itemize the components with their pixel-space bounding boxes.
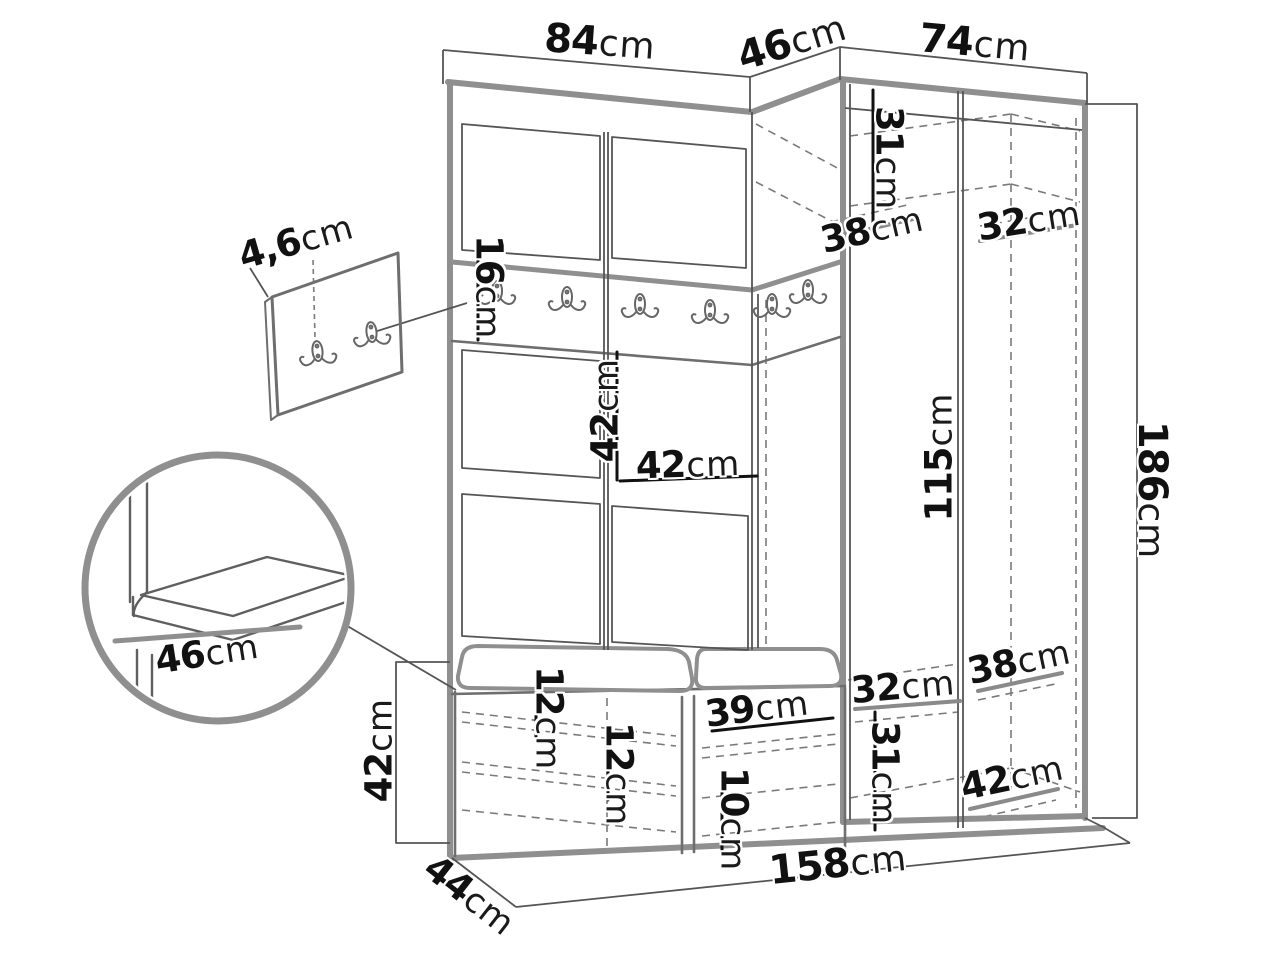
- dim-unit: cm: [972, 27, 1032, 68]
- dim-value: 42: [587, 413, 624, 463]
- dim-value: 32: [849, 668, 902, 709]
- dim-unit: cm: [1132, 502, 1168, 559]
- dim-value: 39: [703, 690, 757, 733]
- dim-unit: cm: [867, 771, 901, 825]
- dim-unit: cm: [601, 772, 635, 826]
- coat-hook-icon: [549, 287, 585, 310]
- dim-bench-height: 42cm: [361, 698, 398, 802]
- dim-niche-height: 42cm: [587, 358, 624, 462]
- dim-value: 115: [921, 447, 958, 521]
- wall-panel-detail: [265, 253, 402, 420]
- dim-unit: cm: [1014, 635, 1074, 679]
- coat-hook-icon: [692, 300, 728, 323]
- dim-unit: cm: [686, 447, 741, 483]
- dim-lower-right-height: 31cm: [867, 721, 904, 825]
- dim-value: 10: [716, 767, 753, 817]
- dim-unit: cm: [598, 26, 657, 66]
- dim-value: 74: [918, 18, 975, 63]
- dim-value: 38: [817, 212, 874, 259]
- coat-hook-rail: [479, 280, 826, 323]
- dim-lower-middle-width: 32cm: [849, 663, 956, 709]
- dim-value: 12: [531, 666, 568, 716]
- dim-unit: cm: [531, 716, 565, 770]
- dim-unit: cm: [924, 393, 958, 447]
- dim-shoe-shelf-gap-1: 12cm: [531, 666, 568, 770]
- dim-value: 38: [964, 644, 1020, 690]
- dim-unit: cm: [716, 817, 750, 871]
- dim-niche-width: 42cm: [635, 444, 741, 485]
- dim-unit: cm: [871, 156, 905, 210]
- dim-unit: cm: [900, 666, 957, 705]
- dim-value: 46: [153, 635, 208, 679]
- coat-hook-icon: [352, 320, 391, 347]
- dim-unit: cm: [471, 285, 505, 339]
- dim-rail-height: 16cm: [471, 235, 508, 339]
- dim-unit: cm: [364, 698, 398, 752]
- dim-top-left-width: 84cm: [543, 18, 657, 66]
- dim-unit: cm: [590, 358, 624, 412]
- dim-value: 42: [957, 760, 1013, 806]
- dim-unit: cm: [1007, 751, 1067, 795]
- seat-corner-detail: [85, 455, 355, 721]
- coat-hook-icon: [790, 280, 826, 303]
- coat-hook-icon: [754, 294, 790, 317]
- dim-value: 31: [871, 106, 908, 155]
- dim-value: 42: [635, 446, 686, 485]
- dim-shoe-shelf-gap-3: 10cm: [716, 767, 753, 871]
- dim-unit: cm: [753, 686, 811, 726]
- dim-value: 32: [975, 202, 1030, 246]
- dim-value: 84: [543, 18, 599, 62]
- dim-value: 186: [1132, 421, 1172, 502]
- dim-open-section-height: 115cm: [921, 393, 958, 522]
- dim-shoe-shelf-gap-2: 12cm: [601, 722, 638, 826]
- diagram-canvas: 84cm 46cm 74cm 31cm 38cm 32cm 4,6cm 16cm…: [0, 0, 1280, 960]
- dim-unit: cm: [1025, 197, 1083, 239]
- dim-total-height: 186cm: [1132, 421, 1172, 559]
- dim-top-right-width: 74cm: [918, 18, 1033, 68]
- coat-hook-icon: [622, 294, 658, 317]
- dim-value: 42: [361, 753, 398, 803]
- coat-hook-icon: [298, 339, 337, 366]
- dim-value: 31: [867, 721, 904, 771]
- dim-upper-corner-height: 31cm: [871, 106, 908, 210]
- dim-unit: cm: [203, 630, 261, 672]
- dim-value: 16: [471, 235, 508, 285]
- dim-value: 158: [767, 843, 851, 891]
- dim-value: 12: [601, 722, 638, 772]
- dim-unit: cm: [849, 841, 909, 883]
